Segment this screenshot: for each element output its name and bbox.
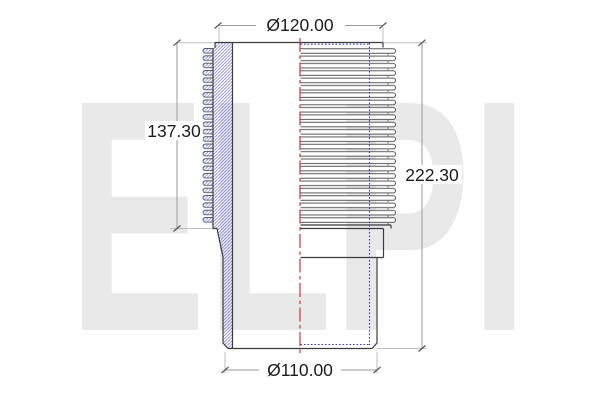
right-cooling-fins xyxy=(301,48,397,224)
top-diameter-label: Ø120.00 xyxy=(266,15,333,35)
fin-section-height-label: 137.30 xyxy=(147,121,201,141)
left-cooling-fins-section xyxy=(203,48,214,224)
watermark-text: ELPI xyxy=(68,31,528,400)
technical-drawing-page: ELPI Ø120.00 137.30 xyxy=(0,0,600,400)
bottom-diameter-label: Ø110.00 xyxy=(267,360,333,380)
cylinder-liner-technical-drawing: ELPI Ø120.00 137.30 xyxy=(0,0,600,400)
total-height-label: 222.30 xyxy=(405,165,459,185)
brand-watermark: ELPI xyxy=(68,31,528,400)
